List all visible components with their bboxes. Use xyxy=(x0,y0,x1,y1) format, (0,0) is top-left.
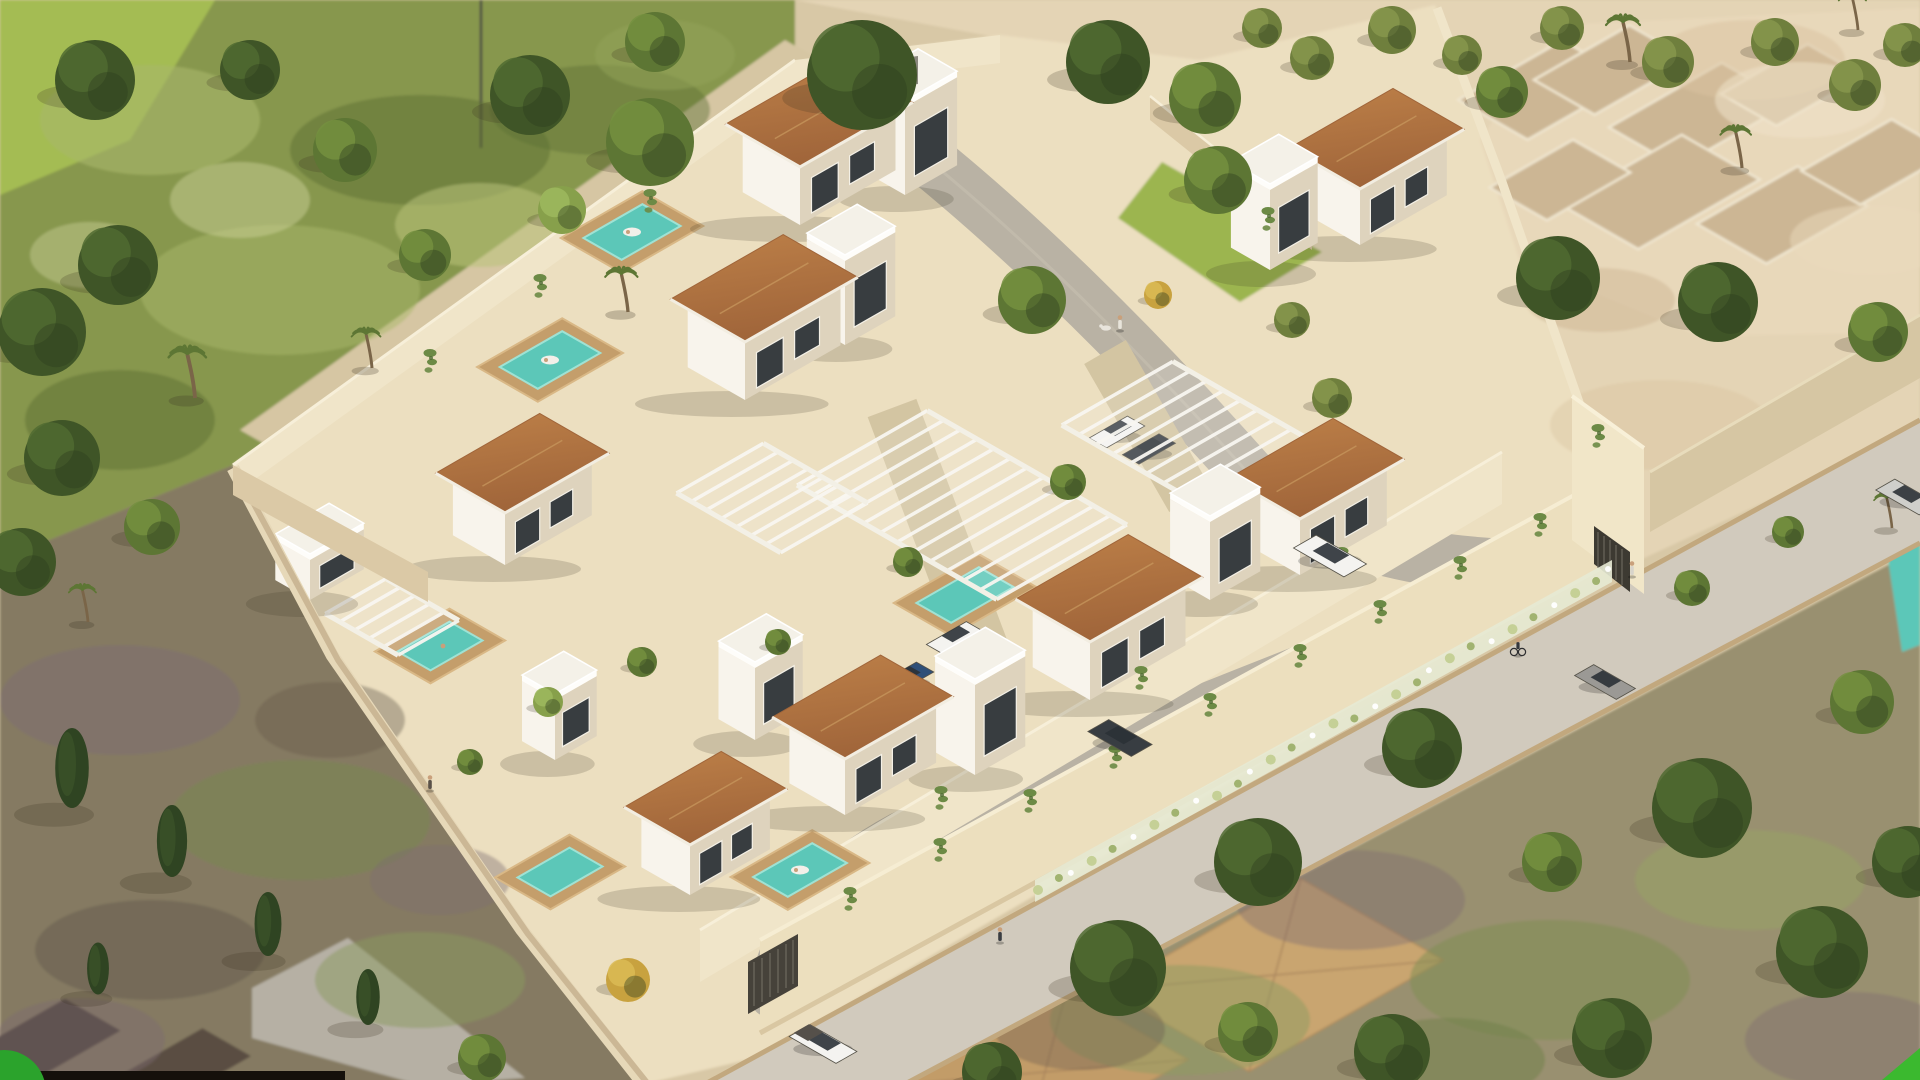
canopy-shade xyxy=(1663,57,1689,83)
hedge-flower xyxy=(1372,703,1378,709)
dog-head xyxy=(1099,324,1103,328)
hedge-flower xyxy=(1508,624,1518,634)
person-head xyxy=(428,775,433,780)
canopy-shade xyxy=(34,323,78,367)
canopy-shade xyxy=(1785,529,1801,545)
vine-top xyxy=(935,786,948,794)
vine-top xyxy=(1454,556,1467,564)
vine-tip xyxy=(1295,662,1303,667)
palm-shadow xyxy=(1606,60,1638,70)
palm-shadow xyxy=(352,367,379,376)
vine-shade xyxy=(1114,752,1118,756)
hedge-flower xyxy=(1413,678,1421,686)
canopy-shade xyxy=(1199,91,1235,127)
hedge-flower xyxy=(1592,577,1600,585)
person-head xyxy=(1630,561,1635,566)
vine-mid xyxy=(847,897,857,903)
vine-shade xyxy=(1597,431,1601,435)
canopy-light xyxy=(58,732,76,796)
vine-tip xyxy=(1263,225,1271,230)
person-shadow xyxy=(1628,575,1636,578)
vine-tip xyxy=(845,905,853,910)
vine-tip xyxy=(1205,711,1213,716)
hedge-flower xyxy=(1212,791,1222,801)
person-shadow xyxy=(426,789,434,792)
canopy-shade xyxy=(1388,25,1412,49)
hedge-flower xyxy=(1109,845,1117,853)
canopy-shade xyxy=(1415,740,1455,780)
architectural-render-stage xyxy=(0,0,1920,1080)
canopy-shade xyxy=(339,144,371,176)
hedge-flower xyxy=(1149,820,1159,830)
vine-top xyxy=(1592,424,1605,432)
canopy-shade xyxy=(1693,798,1743,848)
hedge-flower xyxy=(1445,653,1455,663)
canopy-shade xyxy=(1243,1026,1273,1056)
vine-tip xyxy=(1593,442,1601,447)
hedge-flower xyxy=(1570,588,1580,598)
vine-shade xyxy=(539,281,543,285)
vine-shade xyxy=(1539,520,1543,524)
vine-shade xyxy=(1299,651,1303,655)
vine-mid xyxy=(1265,217,1275,223)
building-shadow xyxy=(597,886,760,912)
vine-mid xyxy=(1297,654,1307,660)
canopy-light xyxy=(358,972,370,1017)
canopy-shade xyxy=(55,450,93,488)
canopy-shade xyxy=(1605,1030,1645,1070)
hedge-flower xyxy=(1193,798,1199,804)
vine-shade xyxy=(1029,796,1033,800)
canopy-shade xyxy=(776,639,789,652)
vine-mid xyxy=(938,796,948,802)
canopy-shade xyxy=(16,555,50,589)
canopy-shade xyxy=(1100,54,1142,96)
hedge-flower xyxy=(1391,689,1401,699)
canopy-shade xyxy=(1308,54,1330,76)
canopy-shade xyxy=(905,559,920,574)
canopy-shade xyxy=(1850,80,1876,106)
person-body xyxy=(428,780,432,789)
hedge-flower xyxy=(1350,714,1358,722)
person-body xyxy=(1118,320,1122,329)
hedge-flower xyxy=(1489,638,1495,644)
vine-tip xyxy=(535,292,543,297)
vine-tip xyxy=(425,367,433,372)
vine-mid xyxy=(1537,523,1547,529)
vine-tip xyxy=(1455,574,1463,579)
canopy-light xyxy=(160,809,176,867)
vine-tip xyxy=(1025,807,1033,812)
canopy-shade xyxy=(1289,316,1307,334)
canopy-shade xyxy=(523,87,563,127)
hedge-flower xyxy=(1068,870,1074,876)
vine-top xyxy=(1135,666,1148,674)
canopy-shade xyxy=(88,72,128,112)
vine-shade xyxy=(940,793,944,797)
canopy-shade xyxy=(1550,270,1592,312)
tree-shadow xyxy=(120,872,192,894)
person-head xyxy=(1516,638,1520,642)
canopy-shade xyxy=(1814,943,1860,989)
palm-shadow xyxy=(1839,29,1865,37)
vine-tip xyxy=(1110,763,1118,768)
vine-shade xyxy=(939,845,943,849)
person-body xyxy=(1516,642,1519,649)
vine-mid xyxy=(1138,676,1148,682)
vine-mid xyxy=(1377,610,1387,616)
palm-shadow xyxy=(1720,167,1749,176)
canopy-shade xyxy=(147,521,175,549)
vine-top xyxy=(1204,693,1217,701)
pool-float xyxy=(541,356,559,365)
vine-top xyxy=(844,887,857,895)
garden-mottle xyxy=(35,900,265,1000)
hedge-flower xyxy=(1310,733,1316,739)
hedge-flower xyxy=(1529,613,1537,621)
vine-top xyxy=(1294,644,1307,652)
hedge-flower xyxy=(1426,667,1432,673)
vine-tip xyxy=(936,804,944,809)
canopy-shade xyxy=(1711,294,1751,334)
canopy-shade xyxy=(650,36,680,66)
vine-mid xyxy=(537,284,547,290)
hedge-flower xyxy=(1171,809,1179,817)
hedge-flower xyxy=(1551,602,1557,608)
person-body xyxy=(1630,566,1634,575)
hedge-flower xyxy=(1288,744,1296,752)
float-person xyxy=(794,868,798,872)
canopy-shade xyxy=(852,64,907,119)
canopy-light xyxy=(257,895,271,946)
hedge-flower xyxy=(1467,642,1475,650)
vine-mid xyxy=(1027,799,1037,805)
canopy-shade xyxy=(1771,37,1795,61)
hedge-flower xyxy=(1234,780,1242,788)
canopy-shade xyxy=(1250,853,1294,897)
person-body xyxy=(998,932,1002,941)
building-shadow xyxy=(1206,261,1316,287)
palm-shadow xyxy=(1874,527,1898,535)
vine-mid xyxy=(427,359,437,365)
tree-shadow xyxy=(60,991,112,1007)
vine-tip xyxy=(1136,684,1144,689)
hedge-flower xyxy=(1247,769,1253,775)
hill-mottle xyxy=(170,162,310,238)
canopy-shade xyxy=(545,699,560,714)
canopy-shade xyxy=(642,133,686,177)
hedge-flower xyxy=(1130,834,1136,840)
canopy-shade xyxy=(468,759,481,772)
pool-float xyxy=(791,866,809,875)
person-shadow xyxy=(996,941,1004,944)
person-head xyxy=(998,927,1003,932)
canopy-shade xyxy=(1109,958,1157,1006)
canopy-shade xyxy=(1497,87,1523,113)
vine-mid xyxy=(1457,566,1467,572)
tree-shadow xyxy=(222,952,286,971)
vine-shade xyxy=(1140,673,1144,677)
garden-mottle xyxy=(0,645,240,755)
vine-top xyxy=(1534,513,1547,521)
palm-shadow xyxy=(605,310,635,320)
canopy-shade xyxy=(624,976,646,998)
vine-mid xyxy=(647,199,657,205)
canopy-shade xyxy=(111,257,151,297)
canopy-shade xyxy=(558,205,582,229)
person-head xyxy=(1118,315,1123,320)
vine-shade xyxy=(1379,607,1383,611)
canopy-shade xyxy=(1547,856,1577,886)
vine-top xyxy=(1374,600,1387,608)
canopy-shade xyxy=(1328,394,1348,414)
hedge-flower xyxy=(1055,874,1063,882)
vine-shade xyxy=(1459,563,1463,567)
vine-top xyxy=(1262,207,1275,215)
vine-mid xyxy=(937,848,947,854)
hedge-flower xyxy=(1605,566,1611,572)
canopy-shade xyxy=(1065,478,1083,496)
canopy-shade xyxy=(245,64,275,94)
palm-shadow xyxy=(169,396,204,407)
vine-shade xyxy=(649,196,653,200)
vine-top xyxy=(644,189,657,197)
float-person xyxy=(544,358,548,362)
vine-shade xyxy=(1267,214,1271,218)
canopy-shade xyxy=(1458,51,1478,71)
vine-mid xyxy=(1595,434,1605,440)
pool-float xyxy=(623,228,641,237)
hill-mottle xyxy=(140,225,420,355)
vine-tip xyxy=(645,207,653,212)
bottom-banner-edge xyxy=(25,1071,345,1080)
canopy-shade xyxy=(639,659,654,674)
scene-svg xyxy=(0,0,1920,1080)
vine-top xyxy=(1024,789,1037,797)
swimmer xyxy=(441,644,446,649)
hedge-flower xyxy=(1266,755,1276,765)
vine-tip xyxy=(1375,618,1383,623)
garden-mottle xyxy=(315,932,525,1028)
vine-shade xyxy=(429,356,433,360)
vine-mid xyxy=(1112,755,1122,761)
hedge-flower xyxy=(1328,718,1338,728)
vine-tip xyxy=(1535,531,1543,536)
vine-top xyxy=(534,274,547,282)
tree xyxy=(0,288,86,376)
building-shadow xyxy=(635,391,829,417)
tree-shadow xyxy=(327,1021,383,1038)
canopy-light xyxy=(89,945,100,987)
palm-shadow xyxy=(69,621,95,629)
hedge-flower xyxy=(1033,885,1043,895)
building-shadow xyxy=(909,766,1023,792)
canopy-shade xyxy=(1558,24,1580,46)
canopy-shade xyxy=(1026,293,1060,327)
hedge-flower xyxy=(1087,856,1097,866)
vine-top xyxy=(934,838,947,846)
building-shadow xyxy=(405,556,581,582)
vine-mid xyxy=(1207,703,1217,709)
canopy-shade xyxy=(1212,173,1246,207)
canopy-shade xyxy=(1856,696,1888,728)
canopy-shade xyxy=(1155,292,1169,306)
canopy-shade xyxy=(1689,584,1707,602)
canopy-shade xyxy=(478,1053,502,1077)
vine-top xyxy=(424,349,437,357)
canopy-shade xyxy=(1873,326,1903,356)
canopy-shade xyxy=(1258,24,1278,44)
vine-shade xyxy=(1209,700,1213,704)
vine-shade xyxy=(849,894,853,898)
canopy-shade xyxy=(420,250,446,276)
person-shadow xyxy=(1116,329,1124,332)
vine-tip xyxy=(935,856,943,861)
float-person xyxy=(626,230,630,234)
tree-shadow xyxy=(14,803,94,827)
